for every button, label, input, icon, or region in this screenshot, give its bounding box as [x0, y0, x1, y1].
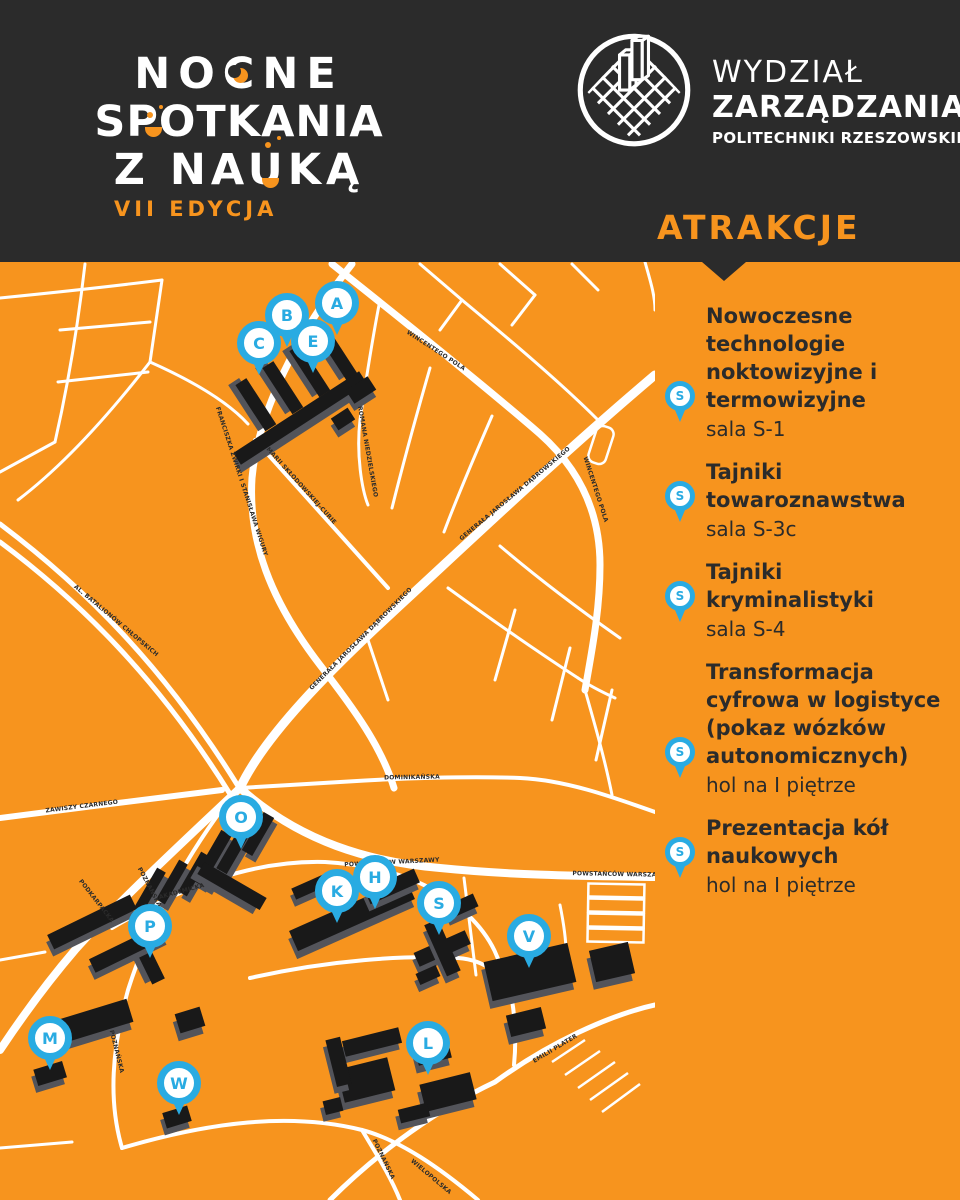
s-pin-icon: S — [665, 737, 695, 767]
attraction-title: Transformacja cyfrowa w logistyce (pokaz… — [706, 658, 954, 770]
event-edition: VII EDYCJA — [86, 197, 392, 221]
attraction-title: Nowoczesne technologie noktowizyjne i te… — [706, 302, 954, 414]
attraction-title: Prezentacja kół naukowych — [706, 814, 954, 870]
map-marker-L: L — [406, 1021, 450, 1065]
bubble-icon — [159, 105, 163, 109]
faculty-name-line2: ZARZĄDZANIA — [712, 90, 960, 126]
attraction-title: Tajniki kryminalistyki — [706, 558, 954, 614]
street-label: DOMINIKAŃSKA — [384, 773, 440, 782]
bubble-icon — [147, 112, 153, 118]
buildings — [29, 324, 636, 1136]
attraction-location: hol na I piętrze — [706, 872, 954, 898]
map-marker-A: A — [315, 281, 359, 325]
map-marker-M: M — [28, 1016, 72, 1060]
map-marker-P: P — [128, 904, 172, 948]
map-marker-H: H — [353, 855, 397, 899]
moon-icon — [233, 68, 248, 83]
map-marker-E: E — [291, 319, 335, 363]
street-label: GENERAŁA JAROSŁAWA DĄBROWSKIEGO — [308, 586, 414, 692]
header-bar: NOCNE SPOTKANIA Z NAUKĄ VII EDYCJA — [0, 0, 960, 262]
event-logo-line3: Z NAUKĄ — [86, 146, 392, 194]
bubble-icon — [265, 142, 271, 148]
faculty-name-line3: POLITECHNIKI RZESZOWSKIEJ — [712, 128, 960, 148]
attractions-list: S Nowoczesne technologie noktowizyjne i … — [660, 302, 954, 914]
list-item: S Tajniki towaroznawstwa sala S-3c — [660, 458, 954, 542]
map-marker-S: S — [417, 881, 461, 925]
map-marker-C: C — [237, 321, 281, 365]
s-pin-icon: S — [665, 837, 695, 867]
list-item: S Tajniki kryminalistyki sala S-4 — [660, 558, 954, 642]
s-pin-icon: S — [665, 581, 695, 611]
street-label: WINCENTEGO POLA — [405, 329, 467, 372]
bubble-icon — [277, 136, 281, 140]
attraction-location: hol na I piętrze — [706, 772, 954, 798]
campus-map: FRANCISZKA ŻWIRKI I STANISŁAWA WIGURY MA… — [0, 262, 655, 1200]
attraction-location: sala S-3c — [706, 516, 954, 542]
attractions-heading: ATRAKCJE — [657, 208, 861, 247]
s-pin-icon: S — [665, 381, 695, 411]
attraction-location: sala S-4 — [706, 616, 954, 642]
street-label: ZAWISZY CZARNEGO — [45, 799, 118, 815]
map-marker-O: O — [219, 795, 263, 839]
event-logo: NOCNE SPOTKANIA Z NAUKĄ VII EDYCJA — [86, 50, 392, 221]
street-label: GENERAŁA JAROSŁAWA DĄBROWSKIEGO — [458, 445, 571, 542]
s-pin-icon: S — [665, 481, 695, 511]
attraction-title: Tajniki towaroznawstwa — [706, 458, 954, 514]
street-label: MARII SKŁODOWSKIEJ-CURIE — [265, 446, 338, 526]
map-marker-W: W — [157, 1061, 201, 1105]
faculty-name: WYDZIAŁ ZARZĄDZANIA POLITECHNIKI RZESZOW… — [712, 56, 960, 148]
map-marker-V: V — [507, 914, 551, 958]
street-label: POZNAŃSKA — [108, 1029, 126, 1074]
list-item: S Prezentacja kół naukowych hol na I pię… — [660, 814, 954, 898]
event-logo-line2: SPOTKANIA — [86, 98, 392, 146]
faculty-logo-icon — [572, 26, 696, 150]
list-item: S Nowoczesne technologie noktowizyjne i … — [660, 302, 954, 442]
attraction-location: sala S-1 — [706, 416, 954, 442]
faculty-name-line1: WYDZIAŁ — [712, 56, 960, 90]
heading-pointer — [702, 262, 746, 281]
list-item: S Transformacja cyfrowa w logistyce (pok… — [660, 658, 954, 798]
